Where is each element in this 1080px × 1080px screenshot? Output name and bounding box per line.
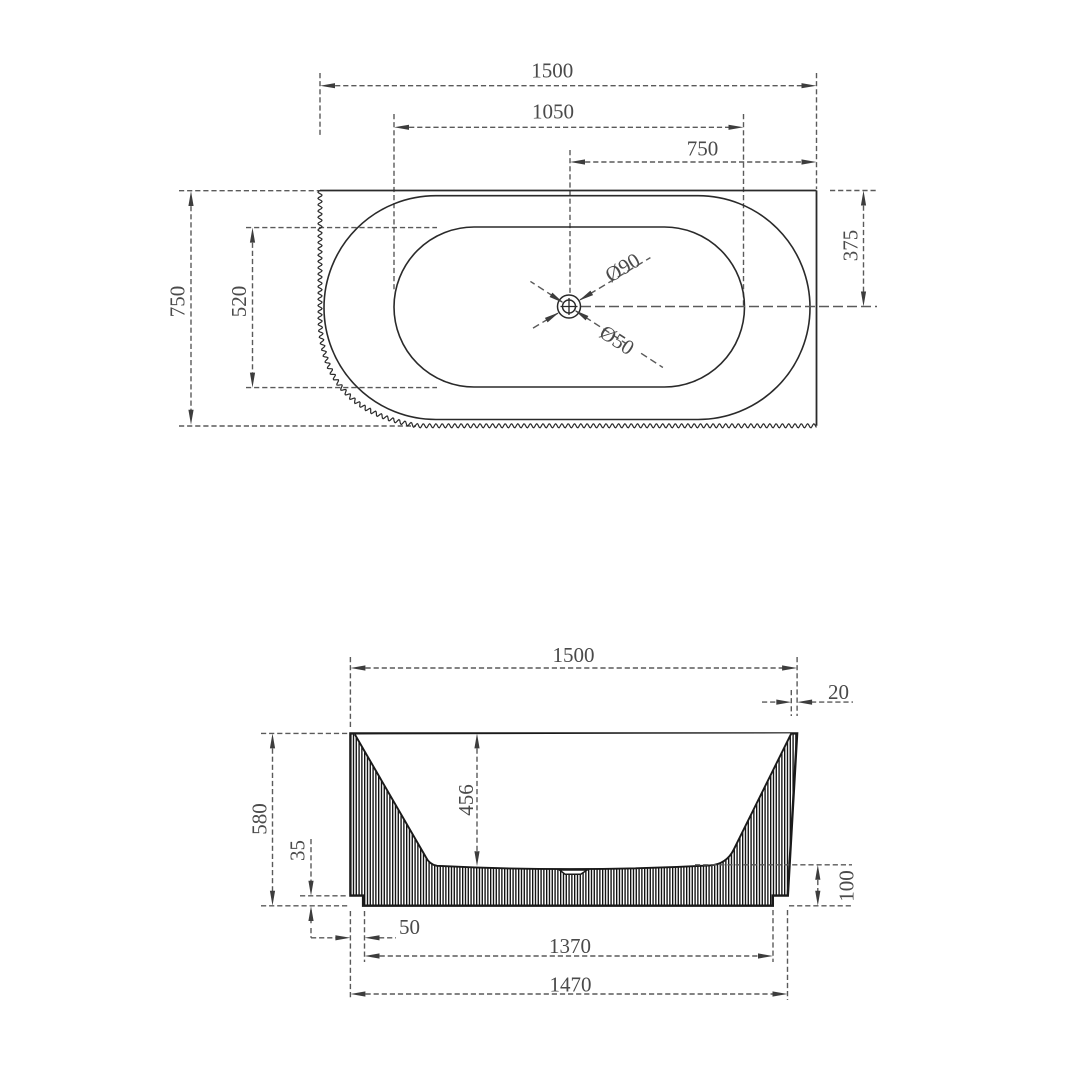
svg-text:20: 20 xyxy=(828,680,849,704)
svg-text:520: 520 xyxy=(227,286,251,318)
svg-text:1370: 1370 xyxy=(549,934,591,958)
svg-text:50: 50 xyxy=(399,915,420,939)
svg-text:35: 35 xyxy=(286,840,310,861)
svg-text:750: 750 xyxy=(687,137,719,161)
svg-text:375: 375 xyxy=(839,230,863,262)
svg-text:100: 100 xyxy=(835,870,859,902)
svg-text:1470: 1470 xyxy=(550,973,592,997)
svg-text:750: 750 xyxy=(166,286,190,318)
svg-text:1050: 1050 xyxy=(532,100,574,124)
svg-text:1500: 1500 xyxy=(553,643,595,667)
svg-text:580: 580 xyxy=(248,803,272,835)
svg-text:456: 456 xyxy=(454,784,478,816)
svg-text:1500: 1500 xyxy=(531,58,573,82)
